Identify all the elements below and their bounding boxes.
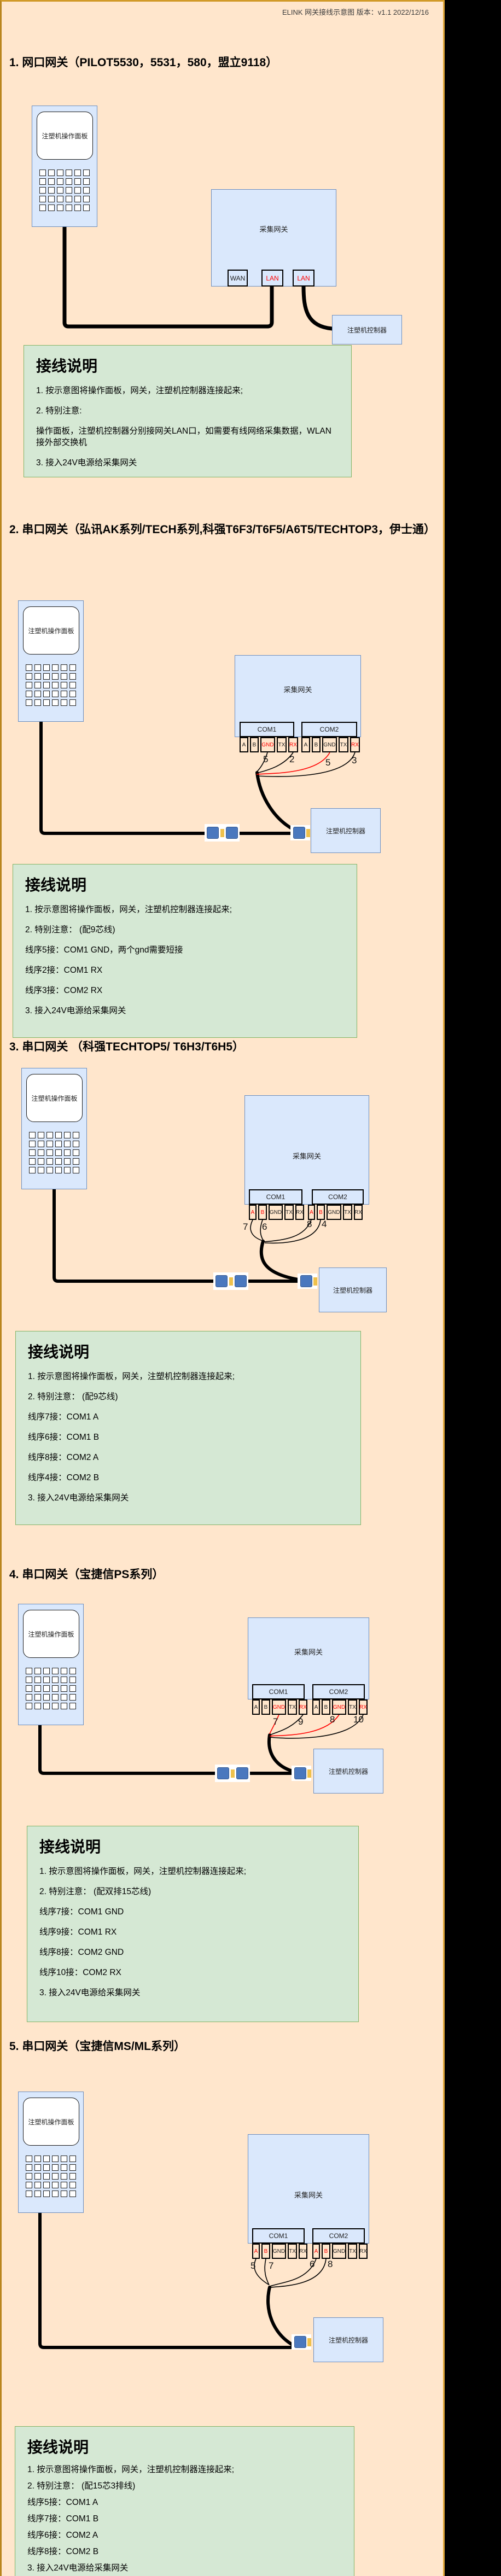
com2-pins-3: A B GND TX RX <box>308 1205 363 1220</box>
keypad-key <box>26 2156 32 2162</box>
keypad-key <box>29 1158 36 1165</box>
keypad-key <box>57 170 63 176</box>
keypad-key <box>39 187 46 194</box>
pin-rx: RX <box>359 1699 368 1715</box>
com1-group-5: COM1 <box>252 2228 305 2244</box>
keypad-key <box>48 178 55 185</box>
wire-label: 4 <box>322 1219 327 1230</box>
wire-label: 5 <box>325 757 330 768</box>
keypad-key <box>83 187 90 194</box>
wire-label: 7 <box>273 1716 278 1727</box>
pin-b: B <box>258 1205 267 1220</box>
ethernet-cable-lan2-to-controller <box>304 287 332 329</box>
gateway-box-5: 采集网关 <box>248 2134 369 2244</box>
keypad-key <box>46 1132 53 1138</box>
keypad-key <box>74 196 81 202</box>
port-wan: WAN <box>228 270 248 287</box>
instruction-line: 线序8接：COM2 GND <box>39 1947 346 1958</box>
pin-rx: RX <box>359 2244 368 2259</box>
controller-box-1: 注塑机控制器 <box>332 315 402 344</box>
keypad-key <box>26 1703 32 1709</box>
keypad-key <box>74 170 81 176</box>
instruction-line: 线序4接：COM2 B <box>28 1472 348 1483</box>
instruction-line: 操作面板，注塑机控制器分别接网关LAN口，如需要有线网络采集数据，WLAN接外部… <box>36 425 339 448</box>
device-keypad-2 <box>26 664 76 706</box>
port-lan-1: LAN <box>261 270 283 287</box>
pin-tx: TX <box>343 1205 352 1220</box>
pin-gnd: GND <box>269 1205 283 1220</box>
pin-tx: TX <box>348 1699 357 1715</box>
keypad-key <box>57 178 63 185</box>
instructions-2-title: 接线说明 <box>25 873 345 895</box>
pin-rx: RX <box>299 2244 307 2259</box>
com1-pins-3: A B GND TX RX <box>249 1205 304 1220</box>
com1-pins-2: A B GND TX RX <box>240 737 298 752</box>
com2-pins-2: A B GND TX RX <box>301 737 360 752</box>
instruction-line: 线序7接：COM1 B <box>27 2513 342 2525</box>
serial-plug-icon <box>293 827 305 839</box>
keypad-key <box>43 1685 50 1692</box>
keypad-key <box>26 664 32 671</box>
keypad-key <box>83 196 90 202</box>
keypad-key <box>74 178 81 185</box>
serial-plug-icon <box>215 1275 228 1287</box>
instruction-line: 线序8接：COM2 A <box>28 1452 348 1463</box>
pin-gnd: GND <box>260 737 275 752</box>
wire-com2-a-3 <box>264 1220 311 1242</box>
keypad-key <box>34 2182 41 2188</box>
connector-bar-icon <box>307 1769 311 1778</box>
keypad-key <box>52 2182 59 2188</box>
serial-plug-icon <box>294 1767 306 1779</box>
pin-tx: TX <box>339 737 348 752</box>
keypad-key <box>61 699 67 706</box>
keypad-key <box>52 1677 59 1683</box>
instructions-5: 接线说明 1. 按示意图将操作面板，网关，注塑机控制器连接起来; 2. 特别注意… <box>15 2426 354 2576</box>
wire-label: 3 <box>352 755 357 766</box>
keypad-key <box>43 2156 50 2162</box>
wire-com2-gnd-4 <box>270 1715 339 1736</box>
wire-label: 5 <box>263 754 268 765</box>
serial-connector-pair-2 <box>205 824 240 842</box>
instructions-1-title: 接线说明 <box>36 354 339 376</box>
keypad-key <box>55 1141 62 1147</box>
wire-com1-a-5 <box>254 2259 269 2285</box>
keypad-key <box>69 1668 76 1674</box>
pin-b: B <box>312 737 321 752</box>
pin-rx: RX <box>288 737 298 752</box>
instruction-line: 1. 按示意图将操作面板，网关，注塑机控制器连接起来; <box>39 1866 346 1877</box>
connector-bar-icon <box>231 1769 235 1778</box>
device-panel-3: 注塑机操作面板 <box>21 1068 87 1189</box>
keypad-key <box>61 664 67 671</box>
keypad-key <box>43 2182 50 2188</box>
wire-label: 8 <box>328 2259 333 2270</box>
keypad-key <box>26 2173 32 2180</box>
keypad-key <box>69 664 76 671</box>
connector-bar-icon <box>307 2338 311 2346</box>
keypad-key <box>83 170 90 176</box>
keypad-key <box>46 1149 53 1156</box>
wire-label: 9 <box>298 1716 303 1727</box>
serial-connector-pair-3 <box>213 1272 248 1290</box>
wire-com2-rx-4 <box>270 1715 363 1738</box>
device-screen-4: 注塑机操作面板 <box>23 1610 79 1658</box>
pin-gnd: GND <box>322 737 337 752</box>
pin-rx: RX <box>354 1205 363 1220</box>
serial-cable-junction-4 <box>269 1735 294 1772</box>
side-strip <box>445 0 501 2576</box>
keypad-key <box>61 1677 67 1683</box>
keypad-key <box>48 187 55 194</box>
instructions-3: 接线说明 1. 按示意图将操作面板，网关，注塑机控制器连接起来; 2. 特别注意… <box>15 1331 361 1525</box>
keypad-key <box>26 1685 32 1692</box>
keypad-key <box>34 2173 41 2180</box>
port-lan-2: LAN <box>293 270 314 287</box>
keypad-key <box>26 682 32 688</box>
keypad-key <box>57 196 63 202</box>
keypad-key <box>83 205 90 211</box>
keypad-key <box>52 2173 59 2180</box>
keypad-key <box>69 2164 76 2171</box>
gateway-label-3: 采集网关 <box>245 1150 369 1161</box>
keypad-key <box>34 2164 41 2171</box>
com1-group-2: COM1 <box>240 722 294 737</box>
instruction-line: 3. 接入24V电源给采集网关 <box>25 1005 345 1017</box>
keypad-key <box>61 1694 67 1701</box>
keypad-key <box>61 682 67 688</box>
pin-b: B <box>317 1205 325 1220</box>
serial-plug-icon <box>294 2336 306 2348</box>
instruction-line: 1. 按示意图将操作面板，网关，注塑机控制器连接起来; <box>28 1371 348 1382</box>
section-2-title: 2. 串口网关（弘讯AK系列/TECH系列,科强T6F3/T6F5/A6T5/T… <box>9 522 436 537</box>
keypad-key <box>48 170 55 176</box>
keypad-key <box>52 699 59 706</box>
keypad-key <box>34 1694 41 1701</box>
keypad-key <box>52 1703 59 1709</box>
instructions-1: 接线说明 1. 按示意图将操作面板，网关，注塑机控制器连接起来; 2. 特别注意… <box>24 345 352 477</box>
keypad-key <box>64 1132 71 1138</box>
keypad-key <box>69 2173 76 2180</box>
pin-a: A <box>249 1205 257 1220</box>
keypad-key <box>57 187 63 194</box>
controller-box-3: 注塑机控制器 <box>319 1267 387 1312</box>
keypad-key <box>39 178 46 185</box>
keypad-key <box>29 1132 36 1138</box>
keypad-key <box>34 1677 41 1683</box>
keypad-key <box>29 1149 36 1156</box>
keypad-key <box>66 170 72 176</box>
keypad-key <box>52 691 59 697</box>
serial-connector-4 <box>292 1766 311 1781</box>
pin-b: B <box>261 2244 270 2259</box>
instruction-line: 3. 接入24V电源给采集网关 <box>36 457 339 469</box>
keypad-key <box>29 1141 36 1147</box>
pin-gnd: GND <box>332 1699 346 1715</box>
keypad-key <box>64 1149 71 1156</box>
controller-box-5: 注塑机控制器 <box>313 2317 383 2362</box>
keypad-key <box>34 673 41 680</box>
keypad-key <box>55 1149 62 1156</box>
keypad-key <box>34 1668 41 1674</box>
pin-gnd: GND <box>272 2244 286 2259</box>
com2-pins-4: A B GND TX RX <box>312 1699 368 1715</box>
keypad-key <box>52 1694 59 1701</box>
com1-group-4: COM1 <box>252 1684 305 1699</box>
keypad-key <box>38 1158 44 1165</box>
keypad-key <box>39 205 46 211</box>
keypad-key <box>26 2164 32 2171</box>
keypad-key <box>46 1167 53 1173</box>
serial-plug-icon <box>217 1767 229 1779</box>
com2-group-4: COM2 <box>312 1684 365 1699</box>
keypad-key <box>61 2164 67 2171</box>
controller-box-2: 注塑机控制器 <box>311 808 381 853</box>
keypad-key <box>34 1685 41 1692</box>
pin-b: B <box>250 737 259 752</box>
keypad-key <box>52 1685 59 1692</box>
controller-box-4: 注塑机控制器 <box>313 1749 383 1794</box>
wire-label: 10 <box>353 1714 364 1725</box>
keypad-key <box>52 1668 59 1674</box>
keypad-key <box>34 2156 41 2162</box>
serial-cable-junction-2 <box>257 773 297 831</box>
pin-a: A <box>312 1699 320 1715</box>
gateway-label-2: 采集网关 <box>235 684 360 694</box>
keypad-key <box>43 1703 50 1709</box>
instruction-line: 线序3接：COM2 RX <box>25 985 345 996</box>
keypad-key <box>69 1677 76 1683</box>
instructions-4: 接线说明 1. 按示意图将操作面板，网关，注塑机控制器连接起来; 2. 特别注意… <box>27 1826 359 2022</box>
pin-a: A <box>301 737 310 752</box>
keypad-key <box>34 664 41 671</box>
keypad-key <box>73 1132 79 1138</box>
keypad-key <box>38 1141 44 1147</box>
pin-a: A <box>252 1699 260 1715</box>
device-keypad-3 <box>29 1132 79 1173</box>
keypad-key <box>43 1677 50 1683</box>
pin-rx: RX <box>299 1699 307 1715</box>
com2-pins-5: A B GND TX RX <box>312 2244 368 2259</box>
pin-b: B <box>261 1699 270 1715</box>
serial-cable-junction-3 <box>261 1241 301 1280</box>
keypad-key <box>74 205 81 211</box>
keypad-key <box>43 699 50 706</box>
keypad-key <box>26 673 32 680</box>
device-panel-1: 注塑机操作面板 <box>32 106 97 227</box>
gateway-label-5: 采集网关 <box>248 2189 369 2200</box>
instructions-4-title: 接线说明 <box>39 1835 346 1857</box>
gateway-label-1: 采集网关 <box>212 224 336 234</box>
pin-tx: TX <box>277 737 287 752</box>
keypad-key <box>83 178 90 185</box>
instruction-line: 线序7接：COM1 GND <box>39 1906 346 1918</box>
pin-rx: RX <box>295 1205 304 1220</box>
keypad-key <box>34 699 41 706</box>
wire-label: 7 <box>243 1222 248 1232</box>
serial-cable-junction-5 <box>268 2287 294 2346</box>
device-keypad-5 <box>26 2156 76 2197</box>
keypad-key <box>69 1685 76 1692</box>
instruction-line: 1. 按示意图将操作面板，网关，注塑机控制器连接起来; <box>36 385 339 396</box>
keypad-key <box>39 196 46 202</box>
keypad-key <box>52 2156 59 2162</box>
document-content: ELINK 网关接线示意图 版本：v1.1 2022/12/16 1. 网口网关… <box>0 0 445 2576</box>
com2-group-2: COM2 <box>301 722 357 737</box>
com1-pins-4: A B GND TX RX <box>252 1699 307 1715</box>
instruction-line: 线序9接：COM1 RX <box>39 1926 346 1938</box>
wire-com2-b-3 <box>265 1220 321 1243</box>
keypad-key <box>43 682 50 688</box>
keypad-key <box>66 178 72 185</box>
keypad-key <box>61 2191 67 2197</box>
keypad-key <box>52 682 59 688</box>
keypad-key <box>66 205 72 211</box>
keypad-key <box>55 1158 62 1165</box>
device-screen-1: 注塑机操作面板 <box>37 112 93 160</box>
serial-cable-panel-4 <box>40 1725 294 1773</box>
keypad-key <box>69 2182 76 2188</box>
pin-a: A <box>308 1205 315 1220</box>
keypad-key <box>69 699 76 706</box>
serial-plug-icon <box>236 1767 248 1779</box>
keypad-key <box>26 1677 32 1683</box>
connector-bar-icon <box>313 1277 317 1286</box>
pin-tx: TX <box>348 2244 357 2259</box>
keypad-key <box>34 2191 41 2197</box>
keypad-key <box>34 682 41 688</box>
keypad-key <box>43 664 50 671</box>
wire-com1-a-3 <box>250 1220 263 1241</box>
pin-tx: TX <box>288 2244 297 2259</box>
instruction-line: 线序6接：COM1 B <box>28 1432 348 1443</box>
serial-connector-pair-4 <box>215 1765 250 1782</box>
pin-tx: TX <box>288 1699 297 1715</box>
keypad-key <box>34 691 41 697</box>
keypad-key <box>43 2173 50 2180</box>
pin-gnd: GND <box>272 1699 286 1715</box>
keypad-key <box>64 1141 71 1147</box>
instruction-line: 2. 特别注意： (配15芯3排线) <box>27 2480 342 2492</box>
gateway-label-4: 采集网关 <box>248 1646 369 1657</box>
serial-plug-icon <box>226 827 238 839</box>
keypad-key <box>43 691 50 697</box>
keypad-key <box>26 1668 32 1674</box>
pin-a: A <box>312 2244 320 2259</box>
keypad-key <box>26 691 32 697</box>
instruction-line: 2. 特别注意： (配9芯线) <box>28 1391 348 1403</box>
keypad-key <box>61 691 67 697</box>
instructions-2: 接线说明 1. 按示意图将操作面板，网关，注塑机控制器连接起来; 2. 特别注意… <box>13 864 357 1038</box>
wire-com1-rx-2 <box>257 752 293 773</box>
pin-a: A <box>252 2244 260 2259</box>
com1-pins-5: A B GND TX RX <box>252 2244 307 2259</box>
wire-label: 2 <box>289 754 294 765</box>
keypad-key <box>69 673 76 680</box>
keypad-key <box>61 2182 67 2188</box>
pin-rx: RX <box>350 737 360 752</box>
keypad-key <box>61 673 67 680</box>
keypad-key <box>43 2164 50 2171</box>
instruction-line: 线序6接：COM2 A <box>27 2530 342 2541</box>
keypad-key <box>69 682 76 688</box>
keypad-key <box>61 1703 67 1709</box>
keypad-key <box>64 1167 71 1173</box>
wire-com2-rx-2 <box>257 752 355 776</box>
keypad-key <box>48 196 55 202</box>
section-3-title: 3. 串口网关 （科强TECHTOP5/ T6H3/T6H5） <box>9 1039 244 1054</box>
keypad-key <box>48 205 55 211</box>
keypad-key <box>38 1149 44 1156</box>
keypad-key <box>39 170 46 176</box>
keypad-key <box>69 691 76 697</box>
keypad-key <box>74 187 81 194</box>
serial-plug-icon <box>300 1275 312 1287</box>
keypad-key <box>66 196 72 202</box>
keypad-key <box>43 673 50 680</box>
wire-label: 8 <box>307 1219 312 1230</box>
keypad-key <box>43 1694 50 1701</box>
instruction-line: 3. 接入24V电源给采集网关 <box>28 1492 348 1504</box>
section-1-title: 1. 网口网关（PILOT5530，5531，580，盟立9118） <box>9 55 277 70</box>
keypad-key <box>55 1132 62 1138</box>
wire-label: 6 <box>310 2259 314 2270</box>
com1-group-3: COM1 <box>249 1189 302 1205</box>
instruction-line: 线序5接：COM1 A <box>27 2497 342 2508</box>
keypad-key <box>73 1149 79 1156</box>
serial-connector-5 <box>292 2334 311 2350</box>
device-screen-5: 注塑机操作面板 <box>23 2098 79 2146</box>
pin-tx: TX <box>284 1205 294 1220</box>
keypad-key <box>69 2191 76 2197</box>
device-panel-2: 注塑机操作面板 <box>18 600 84 722</box>
keypad-key <box>52 673 59 680</box>
instruction-line: 线序5接：COM1 GND，两个gnd需要短接 <box>25 944 345 956</box>
instruction-line: 2. 特别注意： (配双排15芯线) <box>39 1886 346 1897</box>
device-screen-2: 注塑机操作面板 <box>23 606 79 655</box>
document-header: ELINK 网关接线示意图 版本：v1.1 2022/12/16 <box>282 7 429 17</box>
keypad-key <box>61 1685 67 1692</box>
com2-group-3: COM2 <box>312 1189 364 1205</box>
keypad-key <box>52 664 59 671</box>
keypad-key <box>26 2182 32 2188</box>
keypad-key <box>69 1703 76 1709</box>
connector-bar-icon <box>229 1277 233 1286</box>
serial-connector-3 <box>298 1274 317 1289</box>
keypad-key <box>34 1703 41 1709</box>
keypad-key <box>29 1167 36 1173</box>
instructions-5-title: 接线说明 <box>27 2435 342 2457</box>
device-panel-5: 注塑机操作面板 <box>18 2092 84 2213</box>
device-panel-4: 注塑机操作面板 <box>18 1604 84 1725</box>
instructions-3-title: 接线说明 <box>28 1340 348 1362</box>
instruction-line: 1. 按示意图将操作面板，网关，注塑机控制器连接起来; <box>25 904 345 915</box>
page: ELINK 网关接线示意图 版本：v1.1 2022/12/16 1. 网口网关… <box>0 0 501 2576</box>
keypad-key <box>66 187 72 194</box>
section-4-title: 4. 串口网关（宝捷信PS系列） <box>9 1567 164 1582</box>
keypad-key <box>46 1141 53 1147</box>
keypad-key <box>38 1132 44 1138</box>
keypad-key <box>52 2191 59 2197</box>
keypad-key <box>43 2191 50 2197</box>
keypad-key <box>52 2164 59 2171</box>
pin-gnd: GND <box>332 2244 346 2259</box>
keypad-key <box>73 1141 79 1147</box>
keypad-key <box>43 1668 50 1674</box>
instruction-line: 线序10接：COM2 RX <box>39 1967 346 1978</box>
connector-bar-icon <box>306 829 310 837</box>
pin-b: B <box>322 1699 330 1715</box>
